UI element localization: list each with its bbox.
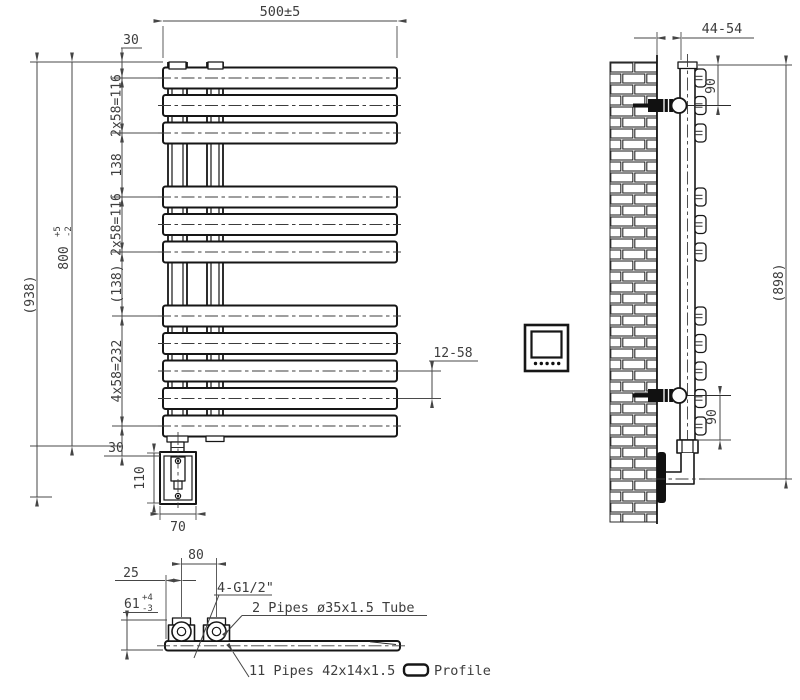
dim-front-offset-top: 30 (123, 33, 139, 48)
label-profile-word: Profile (434, 663, 491, 679)
controller-unit (525, 325, 568, 371)
dim-element-width: 70 (170, 520, 186, 535)
side-bar-ends (695, 69, 706, 435)
towel-bar (158, 306, 401, 327)
towel-bar (158, 416, 401, 437)
pipe-cap-right (208, 62, 223, 69)
pipe-connection-2 (204, 618, 230, 641)
dim-side-overall-height: (898) (772, 263, 787, 302)
towel-bar (158, 388, 401, 409)
dim-pitch-group-top: 2x58=116 (110, 74, 125, 137)
pipe-cap-left (169, 62, 186, 69)
dim-gap-mid: (138) (110, 264, 125, 303)
towel-bar (158, 242, 401, 263)
drawing-canvas: 500±5 30 2x58=116 138 2x58=116 (138) 4x5… (0, 0, 800, 700)
dim-depth-tol-minus: -3 (142, 604, 153, 614)
dim-front-height-tol-plus: +5 (53, 226, 63, 237)
dim-depth: 61 (124, 597, 140, 612)
dim-front-height-tol-minus: -2 (64, 226, 74, 237)
dim-pitch-group-bottom: 4x58=232 (110, 340, 125, 403)
towel-bars (158, 68, 401, 437)
side-bottom-connection (652, 440, 705, 503)
dim-front-overall-height: (938) (23, 275, 38, 314)
dim-depth-tol-plus: +4 (142, 593, 153, 603)
front-view: 500±5 30 2x58=116 138 2x58=116 (138) 4x5… (23, 4, 478, 535)
dim-bracket-offset-top: 90 (704, 78, 719, 94)
brick-wall (610, 62, 657, 522)
dim-bar-pitch-range: 12-58 (433, 346, 472, 361)
dim-gap-top: 138 (110, 153, 125, 176)
controller-screen (532, 332, 562, 358)
dim-front-offset-bottom: 30 (108, 441, 124, 456)
radiator-technical-drawing: 500±5 30 2x58=116 138 2x58=116 (138) 4x5… (0, 0, 800, 700)
towel-bar (158, 187, 401, 208)
label-connections: 4-G1/2" (217, 580, 274, 596)
dim-pipe-spacing: 80 (188, 548, 204, 563)
towel-bar (158, 333, 401, 354)
towel-bar (158, 214, 401, 235)
pipe-connection-1 (169, 618, 195, 641)
label-profiles: 11 Pipes 42x14x1.5 (249, 663, 395, 679)
towel-bar (158, 123, 401, 144)
dim-pitch-group-mid: 2x58=116 (110, 193, 125, 256)
label-tubes: 2 Pipes ø35x1.5 Tube (252, 600, 415, 616)
dim-wall-distance: 44-54 (702, 21, 743, 37)
dim-front-width: 500±5 (260, 4, 301, 20)
dim-end-offset: 25 (123, 566, 139, 581)
side-view: 44-54 90 90 (898) (610, 21, 792, 524)
dim-bracket-offset-bottom: 90 (705, 409, 720, 425)
bottom-view: 80 25 61 +4 -3 4-G1/2" 2 Pipes ø35x1.5 T… (115, 548, 491, 679)
electric-element (160, 432, 224, 508)
dim-element-height: 110 (133, 466, 148, 489)
profile-section-icon (404, 665, 428, 676)
towel-bar (158, 68, 401, 89)
dim-front-height: 800 (57, 246, 72, 269)
towel-bar (158, 361, 401, 382)
towel-bar (158, 95, 401, 116)
